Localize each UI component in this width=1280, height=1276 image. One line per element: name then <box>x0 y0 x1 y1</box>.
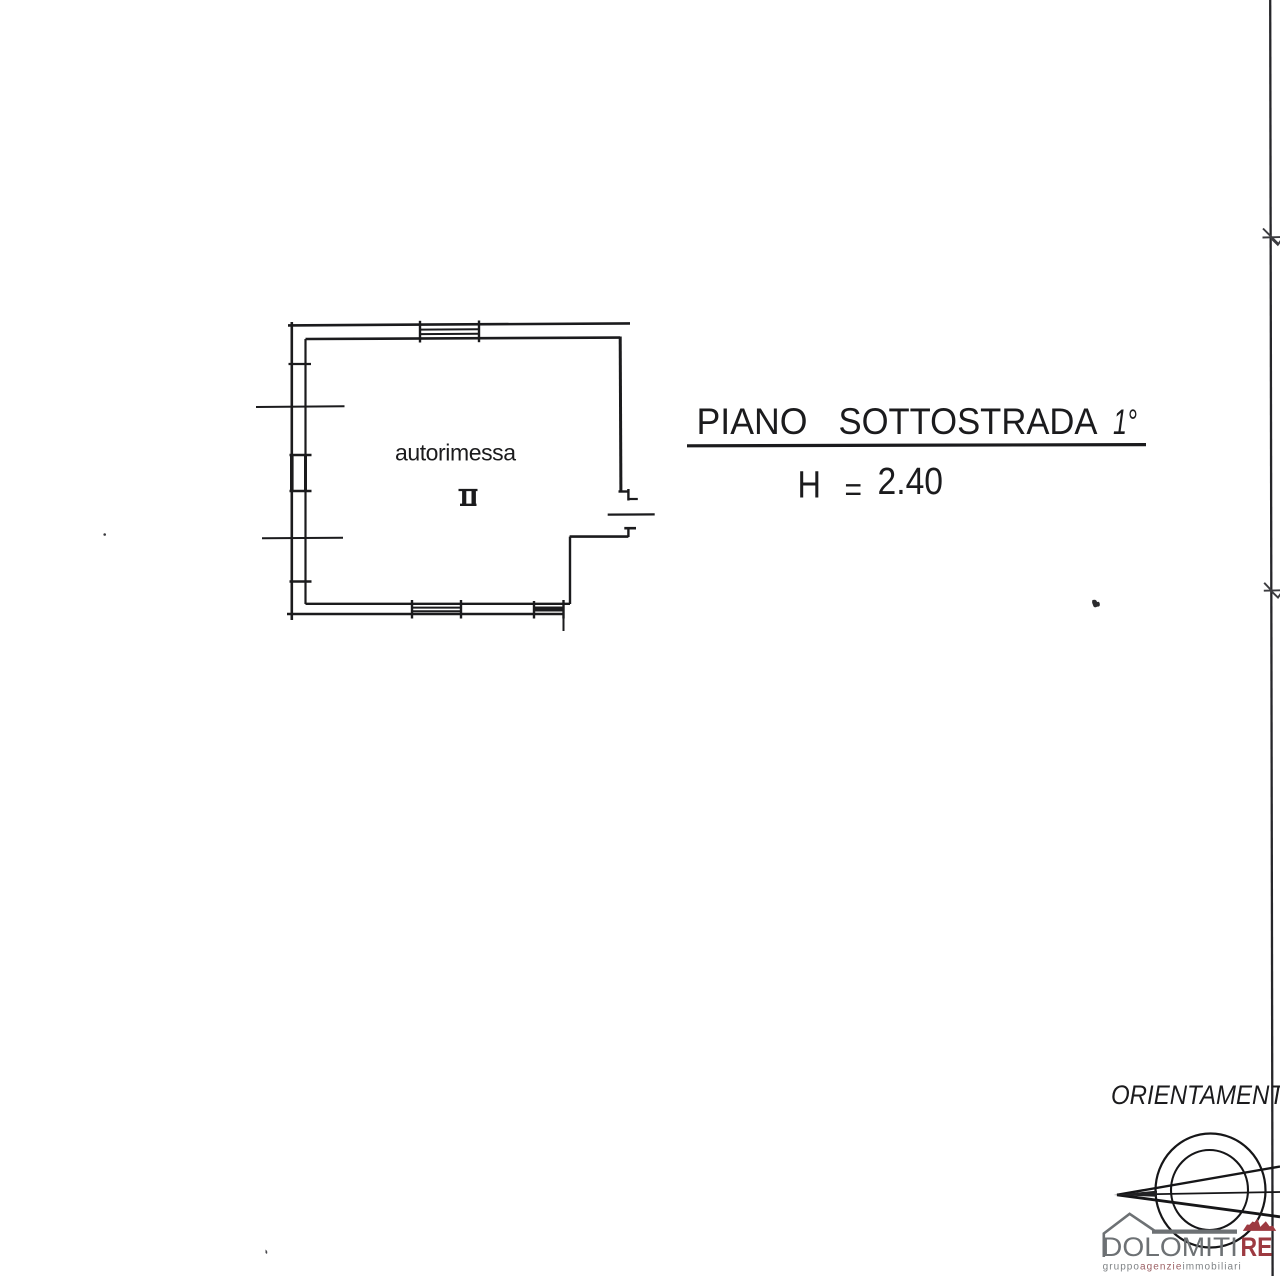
svg-text:gruppoagenzieimmobiliari: gruppoagenzieimmobiliari <box>1103 1262 1242 1273</box>
svg-text:DOLOMITI: DOLOMITI <box>1102 1232 1238 1262</box>
svg-text:H: H <box>798 465 822 507</box>
svg-text:autorimessa: autorimessa <box>395 440 516 466</box>
svg-text:1°: 1° <box>1113 403 1137 442</box>
svg-text:=: = <box>845 471 863 508</box>
svg-text:SOTTOSTRADA: SOTTOSTRADA <box>839 401 1098 442</box>
svg-text:2.40: 2.40 <box>878 461 944 503</box>
svg-text:PIANO: PIANO <box>697 401 808 442</box>
svg-text:RE: RE <box>1241 1232 1273 1262</box>
svg-text:ORIENTAMENTO: ORIENTAMENTO <box>1111 1081 1280 1111</box>
